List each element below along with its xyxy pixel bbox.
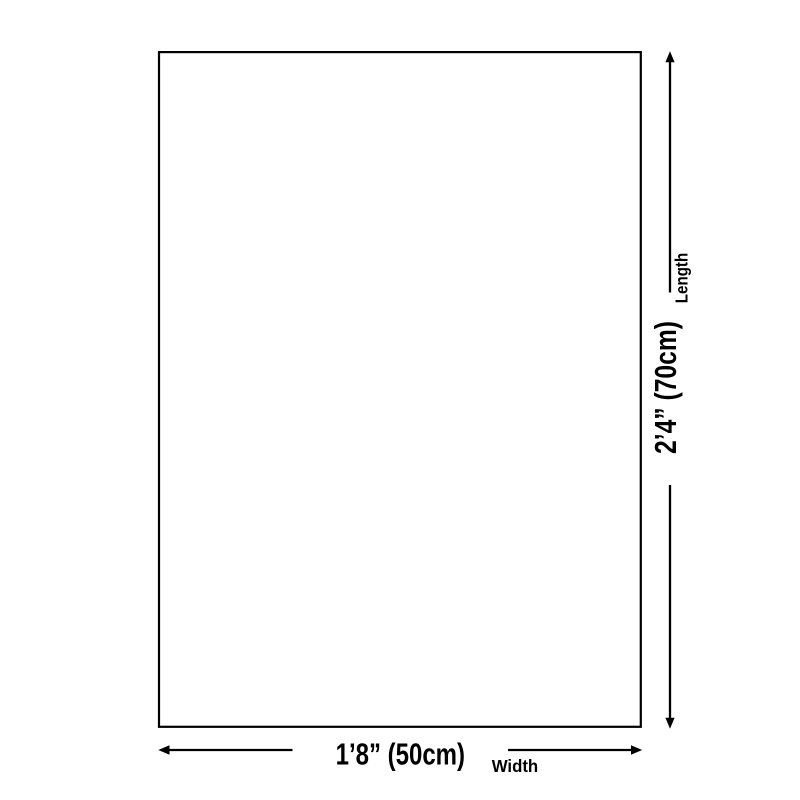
svg-text:2’4” (70cm): 2’4” (70cm) bbox=[648, 321, 683, 454]
svg-text:1’8” (50cm): 1’8” (50cm) bbox=[336, 737, 465, 772]
svg-text:Width: Width bbox=[492, 756, 539, 776]
svg-text:Length: Length bbox=[671, 253, 691, 303]
